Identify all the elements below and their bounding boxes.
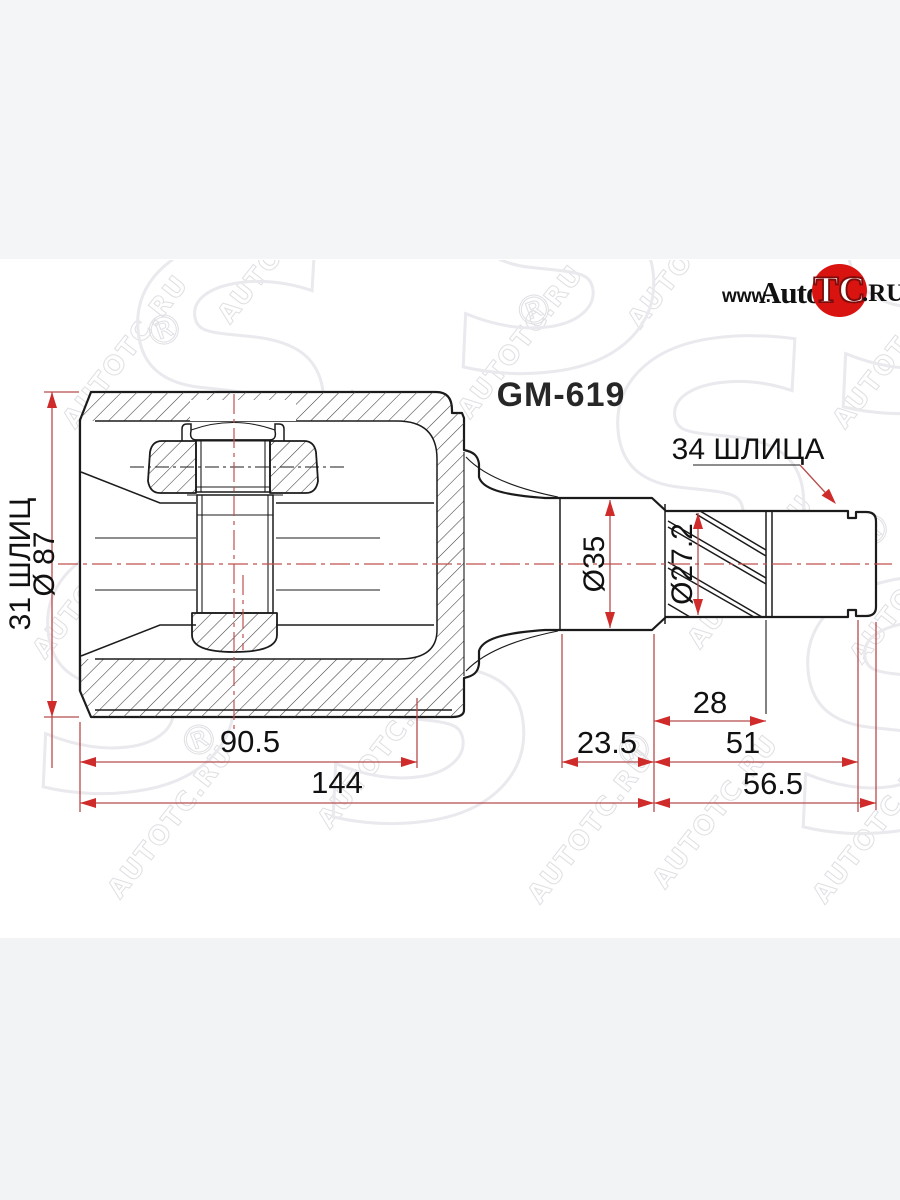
label-dia-body: Ø35 xyxy=(578,536,611,593)
label-dia-spline: Ø27.2 xyxy=(666,523,699,605)
dim-56-5: 56.5 xyxy=(743,766,803,801)
label-splines-right: 34 ШЛИЦА xyxy=(672,433,825,466)
dim-23-5: 23.5 xyxy=(577,725,637,760)
watermark-text: AUTOTC.RU xyxy=(647,729,785,894)
dim-51: 51 xyxy=(726,725,760,760)
logo-tc-circle: TC xyxy=(812,264,867,317)
dim-90-5: 90.5 xyxy=(220,724,280,759)
site-logo[interactable]: www. Auto TC .RU xyxy=(712,262,900,318)
logo-tc: TC xyxy=(814,269,865,312)
logo-ru: .RU xyxy=(862,280,900,308)
cv-joint-diagram: AUTOTC.RUAUTOTC.RUAUTOTC.RUAUTOTC.RUAUTO… xyxy=(0,0,900,1200)
page: AUTOTC.RUAUTOTC.RUAUTOTC.RUAUTOTC.RUAUTO… xyxy=(0,0,900,1200)
label-dia-housing: Ø 87 xyxy=(28,531,61,596)
dim-144: 144 xyxy=(311,765,363,800)
dim-28: 28 xyxy=(693,685,727,720)
part-code: GM-619 xyxy=(497,376,626,414)
